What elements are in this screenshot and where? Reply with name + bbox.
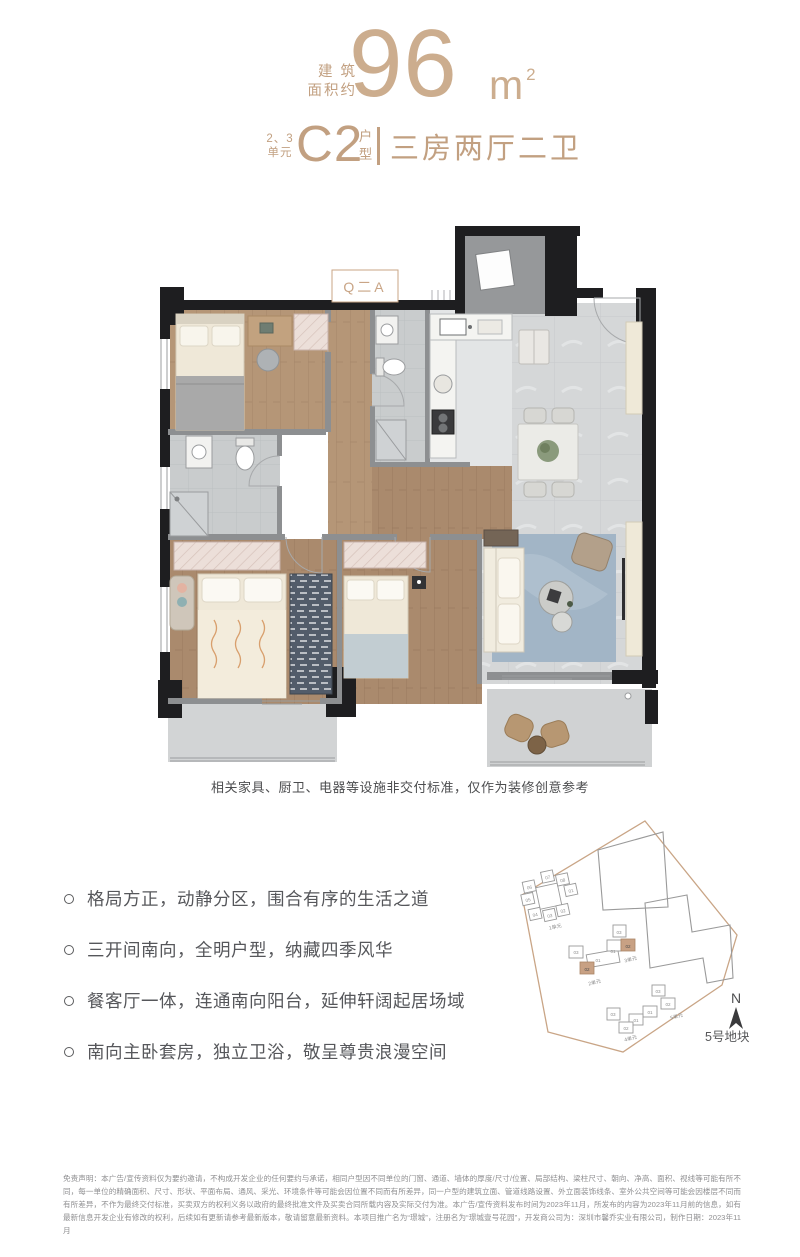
master-rug (290, 574, 332, 694)
feature-list: 格局方正，动静分区，围合有序的生活之道 三开间南向，全明户型，纳藏四季风华 餐客… (64, 886, 465, 1090)
siteplan-svg: 01 02 03 04 05 06 07 08 1单元 03 (495, 800, 775, 1070)
compass-label: N (731, 990, 741, 1006)
corridor-floor (328, 310, 372, 539)
area-unit-m: m (489, 62, 523, 108)
building-cluster-2-3: 03 01 01 03 02 02 2单元 3单元 (569, 925, 638, 987)
cluster5-label: 5单元 (670, 1012, 684, 1022)
feature-item: 格局方正，动静分区，围合有序的生活之道 (64, 886, 465, 911)
divider-bar (377, 127, 380, 165)
svg-text:01: 01 (647, 1010, 653, 1015)
entry-cabinet (626, 322, 642, 414)
bullet-dot-icon (64, 894, 74, 904)
feature-text: 餐客厅一体，连通南向阳台，延伸轩阔起居场域 (87, 988, 465, 1013)
svg-text:03: 03 (610, 1012, 616, 1017)
cluster2-label: 2单元 (588, 978, 602, 988)
svg-text:01: 01 (610, 949, 616, 954)
feature-text: 南向主卧套房，独立卫浴，敬呈尊贵浪漫空间 (87, 1039, 447, 1064)
svg-text:02: 02 (665, 1002, 671, 1007)
bullet-dot-icon (64, 945, 74, 955)
feature-item: 三开间南向，全明户型，纳藏四季风华 (64, 937, 465, 962)
plan-caption: 相关家具、厨卫、电器等设施非交付标准，仅作为装修创意参考 (0, 777, 800, 796)
svg-text:03: 03 (573, 950, 579, 955)
cluster4-label: 4单元 (624, 1034, 638, 1044)
feature-item: 餐客厅一体，连通南向阳台，延伸轩阔起居场域 (64, 988, 465, 1013)
plot-label: 5号地块 (705, 1030, 750, 1044)
svg-text:03: 03 (655, 989, 661, 994)
brochure-page: 建 筑面积约 96 m2 2、3单元 C2 户型 三房两厅二卫 (0, 0, 800, 1257)
cluster1-label: 1单元 (548, 922, 562, 932)
floorplan: Q二A (140, 224, 660, 772)
unit-group-line1: 2、3 (266, 133, 293, 145)
layout-desc: 三房两厅二卫 (390, 125, 582, 167)
floorplan-svg: Q二A (140, 224, 660, 772)
plan-logo-stamp: Q二A (332, 270, 398, 302)
disclaimer-text: 免责声明：本广告/宣传资料仅为要约邀请，不构成开发企业的任何要约与承诺，相同户型… (63, 1172, 741, 1237)
master-wardrobe (174, 542, 280, 570)
tv (622, 558, 625, 620)
unit-group-line2: 单元 (268, 147, 293, 159)
tv-cabinet (626, 522, 642, 656)
bullet-dot-icon (64, 996, 74, 1006)
feature-text: 格局方正，动静分区，围合有序的生活之道 (87, 886, 429, 911)
siteplan: 01 02 03 04 05 06 07 08 1单元 03 (495, 800, 775, 1070)
stamp-text: Q二A (343, 279, 386, 295)
svg-text:03: 03 (616, 930, 622, 935)
type-word-line2: 型 (359, 147, 373, 162)
area-value: 96 (349, 14, 458, 114)
feature-item: 南向主卧套房，独立卫浴，敬呈尊贵浪漫空间 (64, 1039, 465, 1064)
svg-text:01: 01 (633, 1018, 639, 1023)
bedroom2-wardrobe (344, 542, 426, 568)
hall-floor (372, 466, 512, 539)
building-cluster-4-5: 03 02 01 01 02 03 4单元 5单元 (607, 985, 684, 1043)
svg-text:02: 02 (584, 967, 590, 972)
bullet-dot-icon (64, 1047, 74, 1057)
cluster3-label: 3单元 (624, 955, 638, 965)
unit-group: 2、3单元 (263, 132, 297, 160)
type-word-line1: 户 (359, 129, 373, 144)
feature-text: 三开间南向，全明户型，纳藏四季风华 (87, 937, 393, 962)
area-unit-sup: 2 (526, 65, 535, 84)
area-unit: m2 (489, 62, 533, 109)
compass-icon: N (729, 990, 743, 1029)
type-word: 户型 (358, 128, 373, 163)
svg-text:02: 02 (623, 1026, 629, 1031)
windows (158, 339, 170, 652)
balcony1-floor (168, 704, 337, 762)
type-code: C2 (296, 114, 363, 173)
svg-text:02: 02 (625, 944, 631, 949)
svg-text:01: 01 (595, 958, 601, 963)
